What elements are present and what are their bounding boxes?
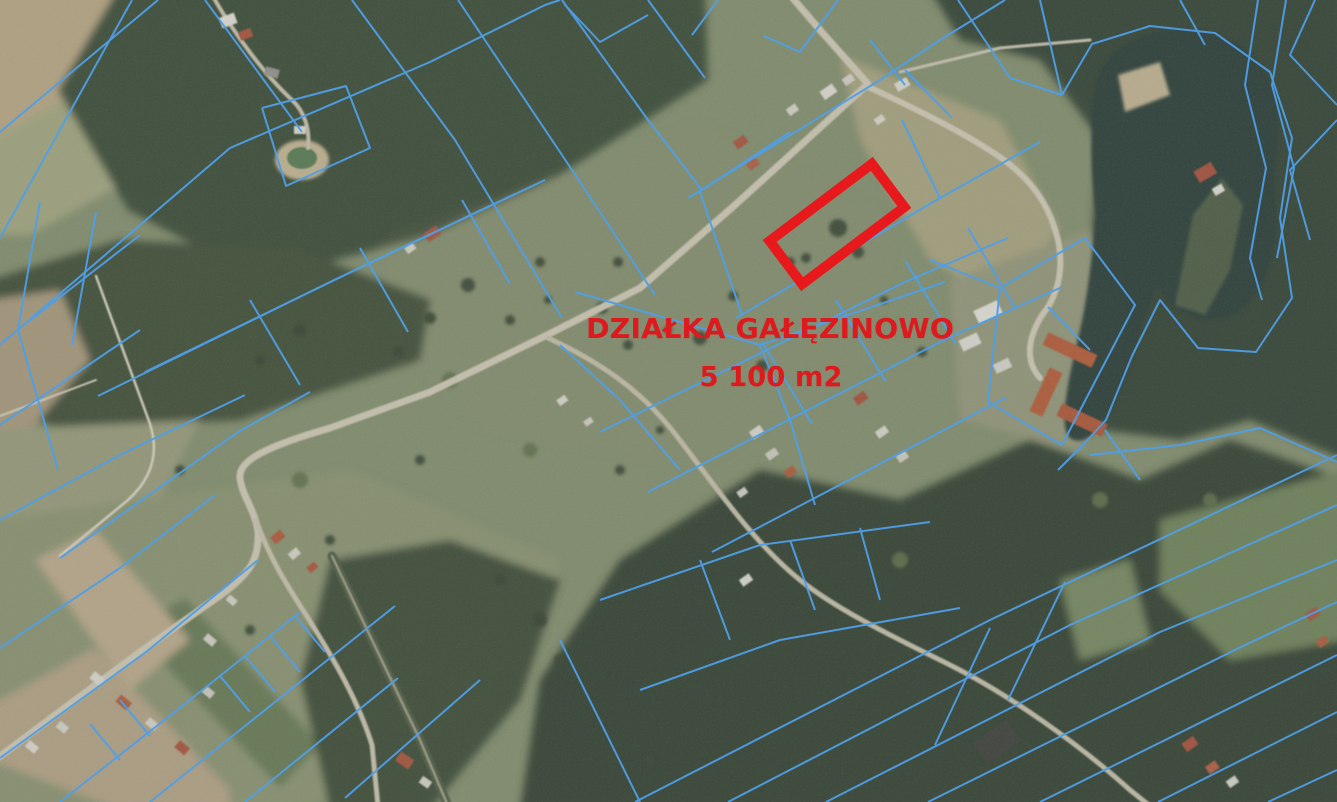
parcel-name-label: DZIAŁKA GAŁĘZINOWO [586, 312, 954, 345]
map-canvas: DZIAŁKA GAŁĘZINOWO 5 100 m2 [0, 0, 1337, 802]
satellite-map-viewport[interactable]: DZIAŁKA GAŁĘZINOWO 5 100 m2 [0, 0, 1337, 802]
parcel-area-label: 5 100 m2 [700, 360, 843, 393]
blue-cast [0, 0, 1337, 802]
